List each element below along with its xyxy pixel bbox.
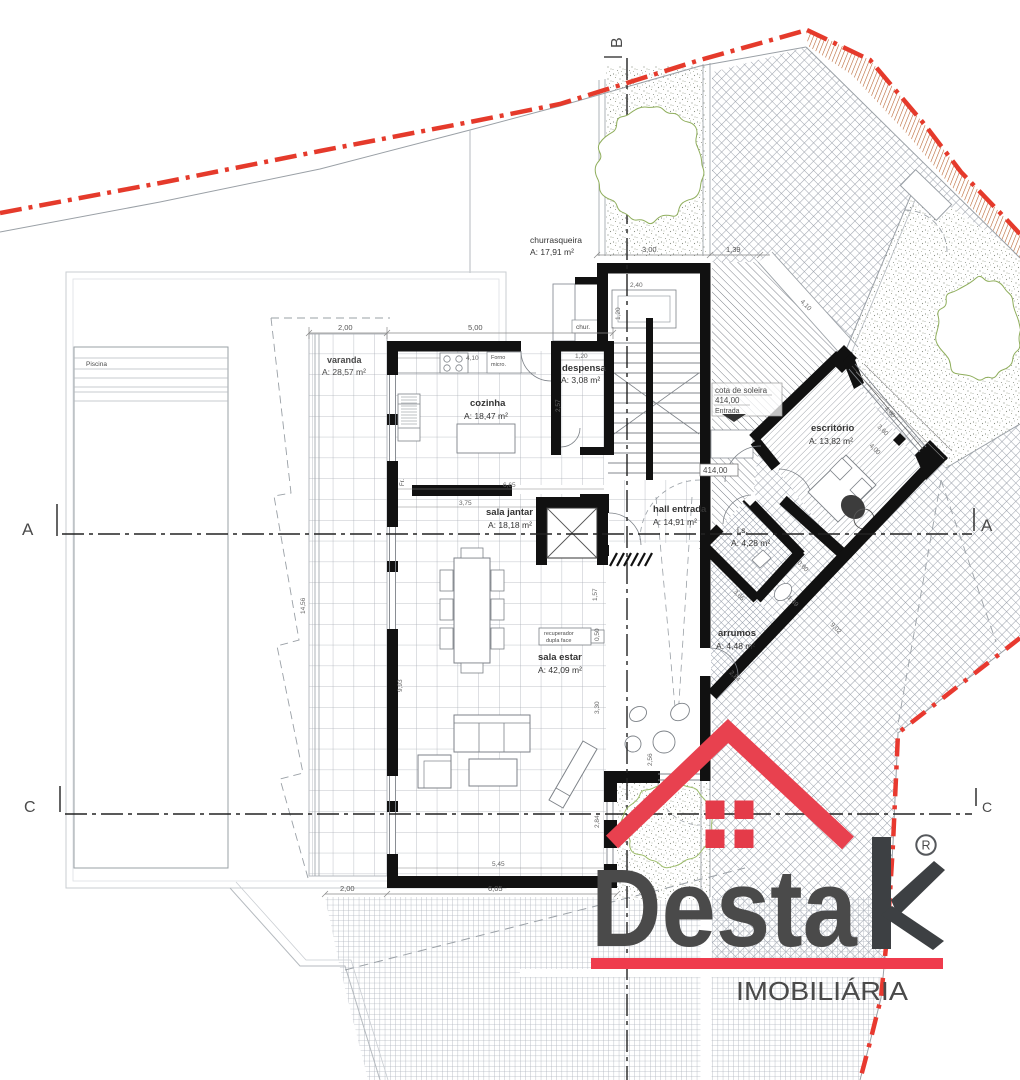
svg-text:Desta: Desta <box>591 847 858 970</box>
svg-text:5,00: 5,00 <box>468 323 483 332</box>
svg-text:C: C <box>982 799 992 815</box>
svg-text:6,05: 6,05 <box>488 884 503 893</box>
svg-text:1,20: 1,20 <box>575 353 588 360</box>
svg-text:chur.: chur. <box>576 324 590 331</box>
svg-text:A: 4,48 m²: A: 4,48 m² <box>716 641 755 651</box>
svg-text:2,40: 2,40 <box>630 282 643 289</box>
svg-text:3,75: 3,75 <box>459 500 472 507</box>
svg-text:R: R <box>922 839 931 853</box>
svg-text:varanda: varanda <box>327 355 363 365</box>
svg-text:414,00: 414,00 <box>703 466 728 475</box>
svg-text:1,57: 1,57 <box>592 588 599 601</box>
svg-text:micro.: micro. <box>491 362 506 368</box>
svg-text:dupla face: dupla face <box>546 638 571 644</box>
svg-text:1,20: 1,20 <box>615 307 622 320</box>
svg-text:14,56: 14,56 <box>300 597 307 614</box>
svg-text:2,84: 2,84 <box>594 815 601 828</box>
svg-text:A: 18,47 m²: A: 18,47 m² <box>464 411 508 421</box>
svg-text:C: C <box>24 799 36 816</box>
svg-text:Entrada: Entrada <box>715 408 740 415</box>
svg-text:414,00: 414,00 <box>715 396 740 405</box>
svg-text:2,00: 2,00 <box>340 884 355 893</box>
svg-text:2,57: 2,57 <box>555 399 562 412</box>
svg-text:arrumos: arrumos <box>718 628 756 639</box>
svg-text:5,45: 5,45 <box>492 861 505 868</box>
svg-text:A: 14,91 m²: A: 14,91 m² <box>653 517 697 527</box>
svg-text:despensa: despensa <box>562 363 607 374</box>
svg-text:cota de soleira: cota de soleira <box>715 386 768 395</box>
svg-text:recuperador: recuperador <box>544 631 574 637</box>
svg-text:sala jantar: sala jantar <box>486 507 533 518</box>
svg-text:4,10: 4,10 <box>466 355 479 362</box>
svg-text:2,56: 2,56 <box>647 753 654 766</box>
svg-text:escritório: escritório <box>811 423 854 434</box>
svg-text:9,93: 9,93 <box>397 679 404 692</box>
svg-text:A: A <box>22 520 34 539</box>
svg-text:B: B <box>609 37 626 48</box>
svg-text:Forno: Forno <box>491 355 505 361</box>
svg-text:A: 17,91 m²: A: 17,91 m² <box>530 247 574 257</box>
svg-text:3,00: 3,00 <box>642 245 657 254</box>
svg-text:cozinha: cozinha <box>470 398 506 409</box>
svg-text:A: 13,82 m²: A: 13,82 m² <box>809 436 853 446</box>
svg-text:A: A <box>981 516 993 535</box>
svg-text:0,50: 0,50 <box>594 628 601 641</box>
svg-text:IMOBILIÁRIA: IMOBILIÁRIA <box>736 976 909 1006</box>
svg-text:A: 4,28 m²: A: 4,28 m² <box>731 538 770 548</box>
svg-text:1,39: 1,39 <box>726 245 741 254</box>
svg-text:A: 18,18 m²: A: 18,18 m² <box>488 520 532 530</box>
svg-text:A: 42,09 m²: A: 42,09 m² <box>538 665 582 675</box>
svg-text:sala estar: sala estar <box>538 652 582 663</box>
svg-text:Piscina: Piscina <box>86 361 107 368</box>
svg-text:2,00: 2,00 <box>338 323 353 332</box>
svg-text:A: 3,08 m²: A: 3,08 m² <box>561 375 600 385</box>
svg-text:churrasqueira: churrasqueira <box>530 235 582 245</box>
svg-text:Fr.: Fr. <box>400 479 406 486</box>
svg-text:6,65: 6,65 <box>503 482 516 489</box>
svg-text:hall entrada: hall entrada <box>653 504 707 515</box>
svg-text:3,30: 3,30 <box>594 701 601 714</box>
svg-text:A: 28,57 m²: A: 28,57 m² <box>322 367 366 377</box>
